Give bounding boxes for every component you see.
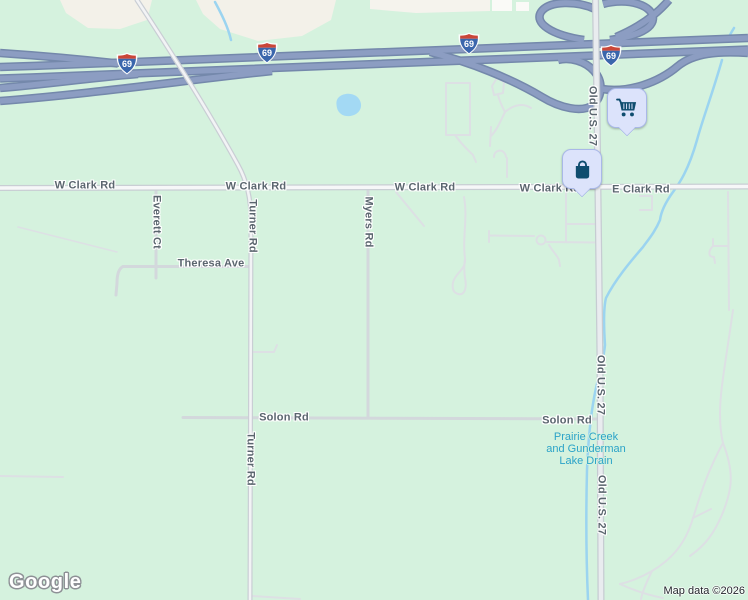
- road-label-e-clark-rd: E Clark Rd: [612, 184, 670, 197]
- road-label-w-clark-rd: W Clark Rd: [55, 180, 116, 193]
- svg-text:69: 69: [262, 47, 272, 57]
- marker-shopping-bag[interactable]: [562, 149, 602, 189]
- road-label-myers-rd: Myers Rd: [362, 196, 375, 247]
- water-label-prairie-creek: Prairie Creek and Gunderman Lake Drain: [546, 431, 626, 467]
- road-solon-rd: [183, 418, 597, 420]
- road-label-turner-rd: Turner Rd: [244, 432, 257, 486]
- interstate-69-shield: 69: [116, 52, 138, 75]
- water-label-line1: Prairie Creek: [546, 431, 626, 443]
- road-label-old-us-27: Old U.S. 27: [595, 475, 608, 535]
- water-label-line3: Lake Drain: [546, 455, 626, 467]
- water-label-line2: and Gunderman: [546, 443, 626, 455]
- google-watermark[interactable]: Google: [9, 571, 82, 594]
- svg-text:69: 69: [606, 50, 616, 60]
- svg-text:69: 69: [464, 38, 474, 48]
- marker-shopping-cart[interactable]: [607, 88, 647, 128]
- interstate-69-shield: 69: [600, 44, 622, 67]
- interstate-69-shield: 69: [458, 32, 480, 55]
- shopping-cart-icon: [614, 95, 640, 121]
- road-label-old-us-27: Old U.S. 27: [586, 86, 599, 146]
- interstate-69-shield: 69: [256, 41, 278, 64]
- road-label-solon-rd: Solon Rd: [259, 412, 309, 425]
- map-attribution: Map data ©2026: [664, 585, 746, 597]
- road-label-turner-rd: Turner Rd: [246, 199, 259, 253]
- road-label-w-clark-rd: W Clark Rd: [395, 182, 456, 195]
- road-label-theresa-ave: Theresa Ave: [178, 258, 245, 271]
- shopping-bag-icon: [570, 157, 595, 182]
- map-canvas[interactable]: 69 69 69 69 W Clark Rd W Clark Rd W Clar…: [0, 0, 748, 600]
- road-label-w-clark-rd: W Clark Rd: [226, 181, 287, 194]
- road-label-solon-rd: Solon Rd: [542, 415, 592, 428]
- road-label-everett-ct: Everett Ct: [150, 195, 163, 249]
- pond: [336, 94, 361, 116]
- svg-text:69: 69: [121, 59, 131, 69]
- road-label-old-us-27: Old U.S. 27: [594, 355, 607, 415]
